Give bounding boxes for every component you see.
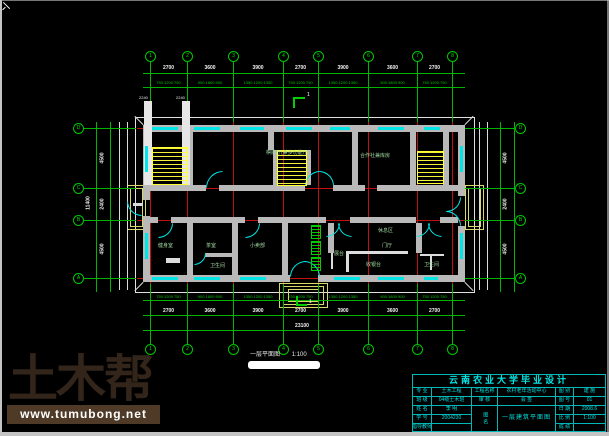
dimension-text-fine: 900 1800 900 — [198, 81, 222, 85]
display-counter-line — [331, 253, 333, 269]
extension-line — [487, 122, 488, 290]
wall — [333, 185, 365, 191]
axis-bubble: C — [515, 183, 526, 194]
axis-bubble: 7 — [412, 51, 423, 62]
axis-bubble: D — [73, 123, 84, 134]
tb-value — [573, 423, 606, 432]
tb-label: 成 绩 — [555, 423, 574, 432]
room-label: 卫生间 — [424, 263, 439, 268]
grid-line — [465, 128, 515, 129]
dimension-text: 2700 — [429, 309, 440, 314]
dimension-text-fine: 1350 1200 1350 — [244, 295, 273, 299]
grid-line — [318, 62, 319, 122]
dimension-text: 3900 — [252, 309, 263, 314]
dimension-text: 4500 — [101, 152, 106, 163]
grid-line — [417, 284, 418, 344]
section-mark — [293, 97, 295, 108]
dimension-text: 3600 — [204, 309, 215, 314]
window — [334, 277, 360, 280]
window — [240, 277, 266, 280]
shaft-pillar — [144, 101, 152, 185]
column-label: 2240 — [139, 96, 148, 100]
grid-line — [84, 220, 136, 221]
cashier-counter-line — [346, 251, 408, 254]
grid-line — [283, 284, 284, 344]
wall — [143, 217, 158, 223]
grid-line — [84, 188, 136, 189]
axis-bubble: A — [73, 273, 84, 284]
dimension-text-fine: 900 1800 900 — [380, 81, 404, 85]
dimension-text: 3900 — [337, 309, 348, 314]
cashier-counter-line — [346, 254, 349, 272]
radiator-hatch — [311, 241, 321, 255]
plan-caption-scale: 1:100 — [292, 352, 307, 358]
dimension-text-overall: 23100 — [295, 324, 309, 329]
tb-label: 指导教师 — [412, 423, 432, 432]
window — [378, 127, 404, 130]
column-label: 2240 — [176, 96, 185, 100]
radiator-hatch — [311, 225, 321, 239]
dimension-text: 2700 — [163, 309, 174, 314]
extension-line — [119, 122, 120, 290]
room-label: 棋牌厅(兼多功能厅) — [266, 151, 309, 156]
axis-bubble: B — [515, 215, 526, 226]
dimension-text: 4500 — [101, 243, 106, 254]
axis-bubble: 4 — [278, 51, 289, 62]
grid-line — [465, 188, 515, 189]
grid-line — [84, 278, 136, 279]
window — [286, 127, 312, 130]
grid-line — [368, 62, 369, 122]
grid-line — [150, 284, 151, 344]
extension-line — [479, 122, 480, 290]
staircase — [417, 151, 444, 184]
dimension-text: 4500 — [504, 152, 509, 163]
room-label: 收银台 — [366, 263, 381, 268]
tb-drawing-name-label: 图名 — [471, 405, 498, 432]
grid-line — [233, 62, 234, 122]
wall — [350, 217, 416, 223]
dimension-text: 2700 — [295, 309, 306, 314]
window — [145, 233, 148, 259]
grid-line — [465, 278, 515, 279]
window — [152, 127, 178, 130]
window — [424, 277, 438, 280]
window — [145, 146, 148, 172]
axis-bubble: 2 — [182, 51, 193, 62]
grid-line — [84, 128, 136, 129]
axis-bubble: C — [73, 183, 84, 194]
window — [460, 146, 463, 172]
room-label: 休息区 — [378, 229, 393, 234]
dimension-text-fine: 750 1200 750 — [422, 81, 446, 85]
dimension-text: 2400 — [504, 198, 509, 209]
tb-value — [431, 423, 472, 432]
grid-line — [187, 284, 188, 344]
dimension-text-fine: 750 1200 750 — [156, 295, 180, 299]
grid-line — [368, 284, 369, 344]
dimension-text-fine: 1350 1200 1350 — [329, 295, 358, 299]
window — [194, 127, 220, 130]
dimension-text: 3900 — [252, 66, 263, 71]
dimension-text: 2400 — [101, 198, 106, 209]
axis-bubble: 6 — [363, 344, 374, 355]
section-mark — [296, 304, 307, 306]
window — [378, 277, 404, 280]
plan-caption: 一层平面图 1:100 — [250, 352, 307, 358]
grid-line — [283, 62, 284, 122]
grid-line — [417, 62, 418, 122]
cursor-artifact-icon — [2, 7, 6, 11]
section-mark-label: 1 — [307, 93, 310, 98]
axis-bubble: 5 — [313, 344, 324, 355]
dimension-line — [96, 122, 97, 292]
dimension-text-fine: 900 1800 900 — [198, 295, 222, 299]
room-label: 合作社兼库房 — [360, 154, 390, 159]
dimension-text-fine: 1350 1200 1350 — [329, 81, 358, 85]
watermark-logo: 土木帮 — [8, 352, 152, 406]
edge-bottom — [0, 432, 609, 436]
dimension-text-overall: 11400 — [87, 196, 92, 210]
axis-bubble: 3 — [228, 51, 239, 62]
dimension-line — [500, 122, 501, 292]
wall — [232, 223, 238, 275]
window — [152, 277, 178, 280]
axis-bubble: 2 — [182, 344, 193, 355]
wall — [258, 217, 326, 223]
plan-caption-underline — [248, 361, 320, 369]
dimension-line — [514, 122, 515, 292]
window — [424, 127, 440, 130]
plan-caption-title: 一层平面图 — [250, 352, 280, 358]
room-label: 小卖部 — [250, 244, 265, 249]
room-label: 展台 — [334, 252, 344, 257]
axis-bubble: B — [73, 215, 84, 226]
door-leaf — [166, 258, 180, 263]
dimension-text: 2700 — [163, 66, 174, 71]
room-label: 卫生间 — [210, 264, 225, 269]
wall — [352, 132, 358, 185]
radiator-hatch — [311, 257, 321, 271]
dimension-text: 2700 — [295, 66, 306, 71]
axis-bubble: 5 — [313, 51, 324, 62]
wall — [205, 253, 238, 257]
dimension-text-fine: 750 1200 750 — [422, 295, 446, 299]
window — [194, 277, 220, 280]
axis-bubble: 8 — [447, 344, 458, 355]
axis-bubble: 3 — [228, 344, 239, 355]
section-mark-label: 1 — [309, 300, 312, 305]
axis-bubble: 8 — [447, 51, 458, 62]
dimension-text-fine: 750 1200 750 — [288, 295, 312, 299]
wall — [282, 223, 288, 275]
grid-line — [452, 284, 453, 344]
dimension-text: 3600 — [387, 66, 398, 71]
toilet-partition-line — [420, 254, 444, 256]
wall — [410, 132, 416, 185]
dimension-text: 4500 — [504, 243, 509, 254]
wall — [377, 185, 458, 191]
watermark-url: www.tumubong.net — [7, 405, 160, 424]
title-block-title: 云南农业大学毕业设计 — [412, 374, 606, 388]
wall — [187, 223, 193, 275]
wall — [143, 185, 206, 191]
dimension-text: 3900 — [337, 66, 348, 71]
window — [240, 127, 264, 130]
dimension-text: 3600 — [387, 309, 398, 314]
room-label: 门厅 — [382, 244, 392, 249]
dimension-text-fine: 900 1800 900 — [380, 295, 404, 299]
dimension-text: 3600 — [204, 66, 215, 71]
axis-bubble: D — [515, 123, 526, 134]
room-label: 茶室 — [206, 244, 216, 249]
edge-left — [0, 0, 2, 436]
grid-line — [233, 284, 234, 344]
tb-drawing-name: 一层建筑平面图 — [497, 405, 556, 432]
window — [460, 233, 463, 259]
grid-line — [452, 62, 453, 122]
window — [330, 127, 350, 130]
cad-canvas: 1 1 1122334455667788DDCCBBAA27002700750 … — [0, 0, 609, 436]
axis-bubble: 7 — [412, 344, 423, 355]
dimension-text-fine: 1350 1200 1350 — [244, 81, 273, 85]
dimension-line — [110, 122, 111, 292]
grid-line — [465, 220, 515, 221]
grid-line — [318, 284, 319, 344]
wall — [268, 132, 274, 150]
room-label: 健身室 — [158, 244, 173, 249]
dimension-text: 2700 — [429, 66, 440, 71]
staircase — [152, 147, 188, 185]
axis-bubble: A — [515, 273, 526, 284]
axis-bubble: 1 — [145, 51, 156, 62]
edge-top — [0, 0, 609, 1]
dimension-text-fine: 750 1200 750 — [156, 81, 180, 85]
dimension-text-fine: 750 1200 750 — [288, 81, 312, 85]
axis-bubble: 6 — [363, 51, 374, 62]
